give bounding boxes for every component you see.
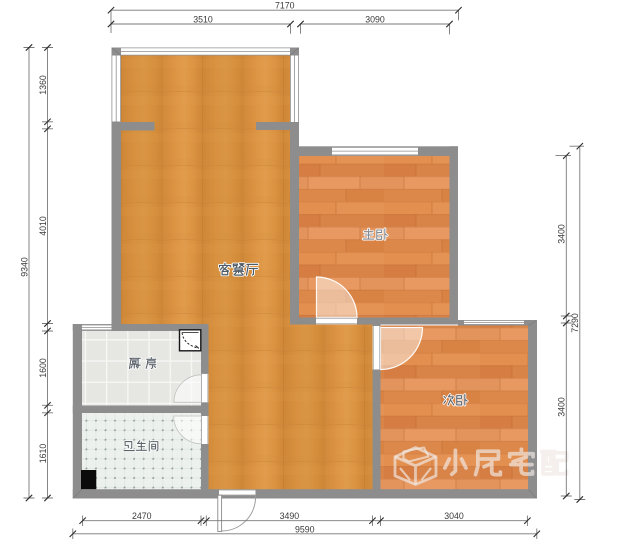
svg-text:1600: 1600 [38,358,48,378]
svg-text:2470: 2470 [132,511,152,521]
svg-text:4010: 4010 [38,216,48,236]
svg-text:7170: 7170 [275,1,295,11]
svg-text:3400: 3400 [557,224,567,244]
svg-text:9340: 9340 [19,257,29,277]
svg-text:3510: 3510 [193,14,213,24]
svg-text:3400: 3400 [557,397,567,417]
svg-text:3090: 3090 [365,14,385,24]
svg-text:1610: 1610 [38,444,48,464]
svg-text:3040: 3040 [444,511,464,521]
svg-text:3490: 3490 [280,511,300,521]
svg-text:7290: 7290 [570,313,580,333]
svg-text:1360: 1360 [38,75,48,95]
svg-text:9590: 9590 [295,525,315,535]
